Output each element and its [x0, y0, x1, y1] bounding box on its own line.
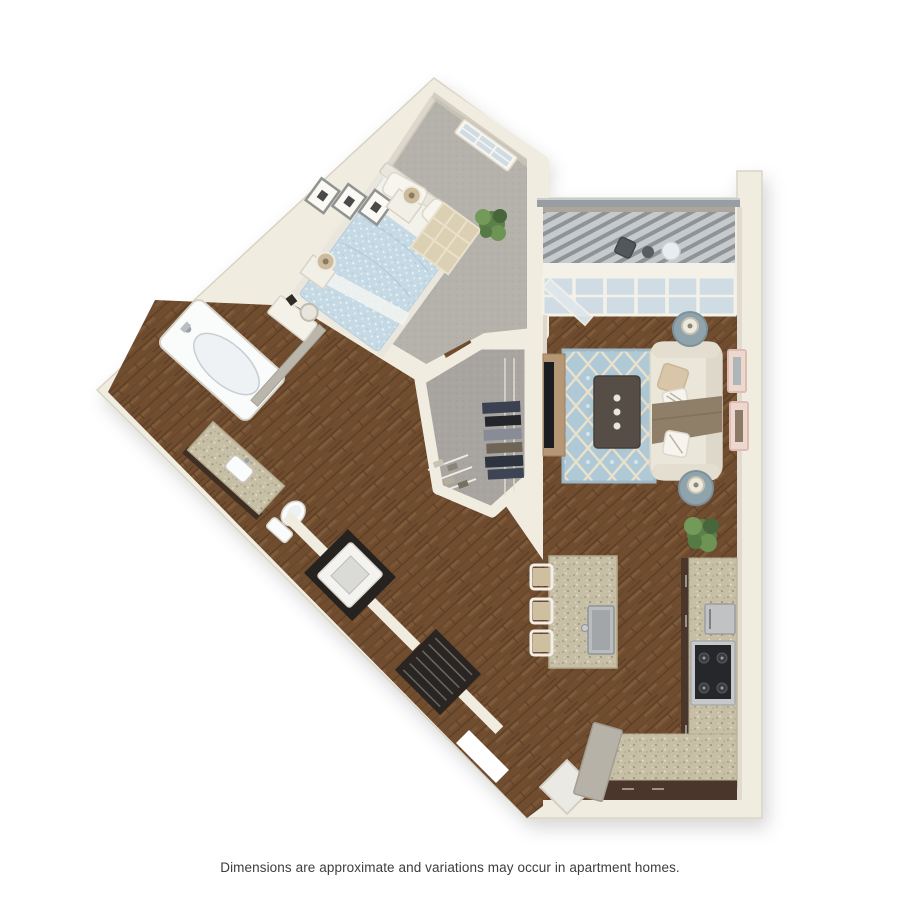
side-table	[679, 471, 713, 505]
tv-console	[543, 354, 565, 456]
tv	[544, 362, 554, 448]
bar-stool	[531, 565, 552, 589]
balcony	[537, 198, 740, 263]
bar-stool	[531, 631, 552, 655]
right-wall-face	[737, 207, 742, 800]
side-table	[673, 312, 707, 346]
island-faucet	[582, 625, 589, 632]
balcony-table	[642, 246, 654, 258]
coffee-table	[585, 369, 649, 457]
balcony-deck	[543, 207, 735, 263]
bar-stools	[531, 565, 552, 655]
striped-pillow	[662, 430, 690, 458]
patio-window-band	[543, 263, 735, 325]
floor-plan-rendering	[0, 0, 900, 900]
floorplan-page: Dimensions are approximate and variation…	[0, 0, 900, 900]
counter-bottom-run	[604, 734, 737, 800]
bar-stool	[531, 599, 552, 623]
range	[691, 641, 735, 705]
sofa	[641, 334, 733, 486]
microwave	[705, 604, 735, 634]
interior-wall	[527, 158, 543, 350]
balcony-lantern	[662, 242, 680, 260]
walk-in-closet	[420, 340, 543, 512]
disclaimer-caption: Dimensions are approximate and variation…	[0, 860, 900, 875]
kitchen-island	[536, 549, 632, 681]
